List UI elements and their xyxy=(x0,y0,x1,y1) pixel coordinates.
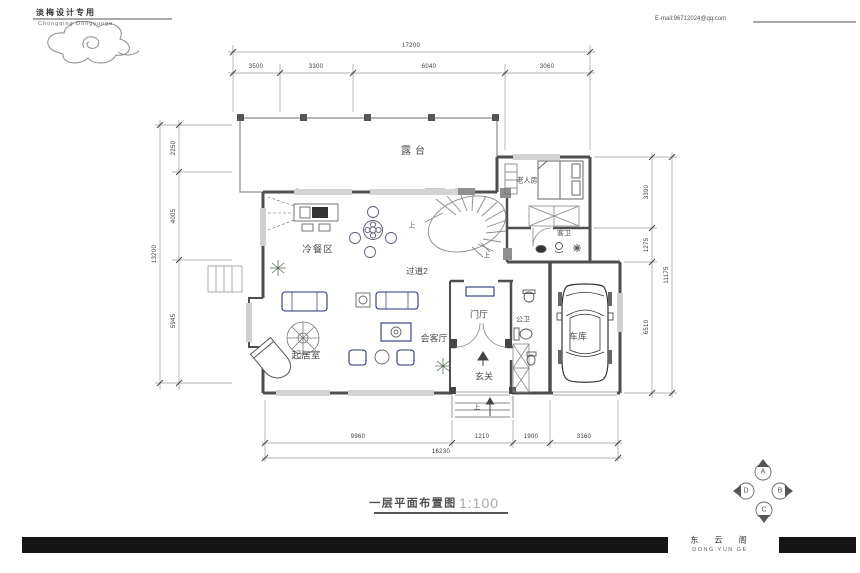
guest-bath-fixtures xyxy=(536,243,581,253)
room-label-reception: 会客厅 xyxy=(420,335,447,344)
footer-studio-name: 东 云 阁 xyxy=(690,535,753,546)
dim-right-segment-0: 3390 xyxy=(644,185,650,200)
compass-letter-d: D xyxy=(743,488,748,495)
guest-bath-door xyxy=(533,228,551,246)
dimension-lines xyxy=(155,45,677,462)
drawing-scale: 1:100 xyxy=(459,496,499,510)
room-label-elder-room: 老人房 xyxy=(517,178,538,185)
room-label-corridor: 过道2 xyxy=(406,267,428,276)
dimension-ticks xyxy=(157,49,675,461)
email-text: E-mail:96712024@qq.com xyxy=(655,16,726,22)
rug-icon xyxy=(287,322,319,354)
dim-bottom-segment-1: 1210 xyxy=(475,434,490,440)
dim-top-segment-2: 6040 xyxy=(422,64,437,70)
bed-icon xyxy=(538,161,583,199)
entry-steps xyxy=(452,396,513,418)
drawing-sheet: 淡梅设计专用 Chongqing Dongyunge E-mail:967120… xyxy=(0,0,860,573)
room-label-public-bath: 公卫 xyxy=(516,317,530,324)
room-label-buffet-area: 冷餐区 xyxy=(302,245,334,255)
dining-set-icon xyxy=(350,207,397,258)
foyer-doors xyxy=(456,323,507,347)
room-label-living-room: 起居室 xyxy=(292,351,321,361)
dim-bottom-segment-0: 9960 xyxy=(351,434,366,440)
tables-icons xyxy=(356,293,401,364)
room-label-entry-hall: 门厅 xyxy=(470,311,488,320)
exterior-stair xyxy=(208,266,242,292)
header-rules xyxy=(33,19,856,22)
dim-right-segment-1: 1275 xyxy=(644,238,650,253)
dim-right-segment-2: 6510 xyxy=(644,320,650,335)
dim-right-total: 11175 xyxy=(664,266,670,283)
cloud-logo-icon xyxy=(48,21,139,63)
brand-title: 淡梅设计专用 xyxy=(36,7,96,18)
dim-left-segment-1: 4005 xyxy=(171,209,177,224)
dim-left-total: 13200 xyxy=(152,245,158,263)
compass-letter-c: C xyxy=(761,507,766,514)
room-label-garage: 车库 xyxy=(569,333,587,342)
public-bath-fixtures xyxy=(514,290,536,365)
dim-bottom-segment-2: 1900 xyxy=(524,434,539,440)
stairs-up-label-2: 上 xyxy=(484,253,491,260)
spiral-stairs xyxy=(421,186,514,262)
dim-top-segment-3: 3060 xyxy=(540,64,555,70)
footer-studio-pinyin: DONG YUN GE xyxy=(692,547,748,553)
floor-plan-drawing xyxy=(0,0,860,573)
terrace-outline xyxy=(237,114,499,192)
footer-bar-left xyxy=(22,537,668,553)
footer-bar-right xyxy=(779,537,856,553)
room-label-terrace: 露台 xyxy=(401,147,429,157)
dim-left-segment-2: 5945 xyxy=(171,314,177,329)
dim-top-segment-1: 3300 xyxy=(309,64,324,70)
dim-bottom-total: 16230 xyxy=(432,449,450,455)
drawing-title: 一层平面布置图 xyxy=(369,499,457,510)
compass-letter-b: B xyxy=(778,488,783,495)
dim-top-total: 17200 xyxy=(402,43,420,49)
console-icon xyxy=(268,197,338,231)
dim-bottom-segment-3: 3160 xyxy=(577,434,592,440)
stairs-up-label-1: 上 xyxy=(409,223,416,230)
compass-letter-a: A xyxy=(761,469,766,476)
room-label-foyer: 玄关 xyxy=(475,373,493,382)
entrance-up-label: 上 xyxy=(474,405,481,412)
room-label-guest-bath: 客卫 xyxy=(557,231,571,238)
dim-top-segment-0: 3500 xyxy=(249,64,264,70)
brand-subtitle: Chongqing Dongyunge xyxy=(38,21,113,27)
dim-left-segment-0: 2250 xyxy=(171,141,177,156)
